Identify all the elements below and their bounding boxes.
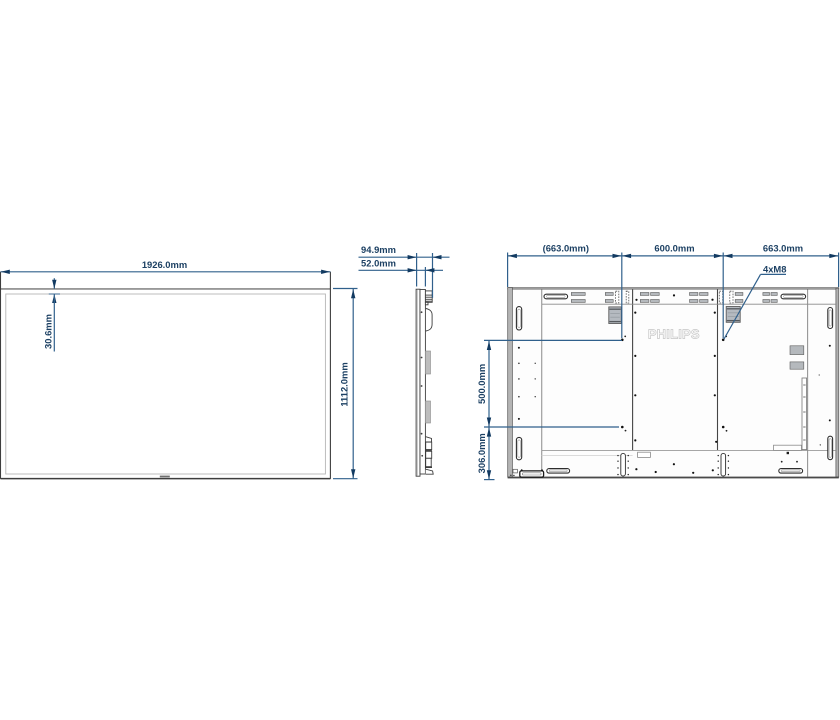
svg-text:663.0mm: 663.0mm xyxy=(763,243,803,254)
svg-text:30.6mm: 30.6mm xyxy=(42,314,53,349)
svg-text:306.0mm: 306.0mm xyxy=(476,433,487,473)
svg-text:52.0mm: 52.0mm xyxy=(361,257,396,268)
svg-text:600.0mm: 600.0mm xyxy=(654,243,694,254)
svg-text:1112.0mm: 1112.0mm xyxy=(338,362,349,406)
svg-text:94.9mm: 94.9mm xyxy=(361,244,396,255)
svg-text:500.0mm: 500.0mm xyxy=(476,364,487,404)
svg-text:1926.0mm: 1926.0mm xyxy=(142,259,187,270)
svg-text:PHILIPS: PHILIPS xyxy=(648,327,700,342)
svg-text:4xM8: 4xM8 xyxy=(763,264,786,275)
svg-text:(663.0mm): (663.0mm) xyxy=(543,243,589,254)
